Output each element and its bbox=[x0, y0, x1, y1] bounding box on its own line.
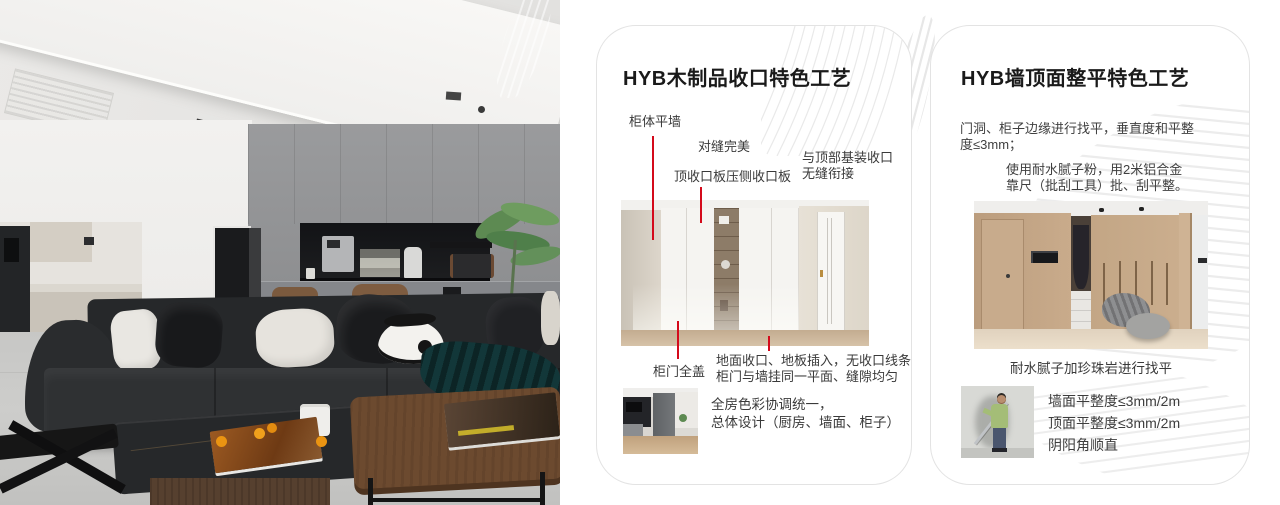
card-wood-finish: HYB木制品收口特色工艺 柜体平墙 对缝完美 顶收口板压侧收口板 与顶部基装收口… bbox=[596, 25, 912, 485]
paragraph-putty: 使用耐水腻子粉，用2米铝合金 靠尺（批刮工具）批、刮平整。 bbox=[1006, 162, 1188, 194]
kt-sofa bbox=[623, 424, 643, 436]
wp-door-groove-2 bbox=[831, 218, 832, 324]
living-room-photo bbox=[0, 0, 560, 505]
annotation-floor-joint-line2: 柜门与墙挂同一平面、缝隙均匀 bbox=[716, 369, 898, 384]
kt-floor bbox=[623, 436, 698, 454]
paragraph-leveling: 门洞、柜子边缘进行找平，垂直度和平整 度≤3mm； bbox=[960, 121, 1194, 153]
kitchen-upper-cabinet bbox=[30, 222, 92, 262]
kitchen-thumbnail bbox=[623, 388, 698, 454]
wwp-intercom bbox=[1031, 251, 1058, 263]
pillow-beige bbox=[541, 291, 560, 345]
wp-light-glow bbox=[633, 284, 803, 334]
orange-fruit-4 bbox=[316, 436, 327, 447]
annotation-line-4 bbox=[768, 336, 770, 351]
annotation-line-3 bbox=[677, 321, 679, 359]
wwp-pouf bbox=[1126, 313, 1170, 339]
spec-wall-flatness: 墙面平整度≤3mm/2m bbox=[1048, 390, 1180, 412]
kitchen-counter bbox=[30, 284, 142, 292]
wardrobe-photo bbox=[621, 200, 869, 346]
ceiling-vent-slot-2 bbox=[446, 91, 462, 100]
wall-rail bbox=[430, 242, 492, 248]
table-stretcher bbox=[368, 498, 545, 502]
spec-ceiling-flatness: 顶面平整度≤3mm/2m bbox=[1048, 412, 1180, 434]
spec-list: 墙面平整度≤3mm/2m 顶面平整度≤3mm/2m 阴阳角顺直 bbox=[1048, 390, 1180, 456]
annotation-color-unify: 全房色彩协调统一， 总体设计（厨房、墙面、柜子） bbox=[711, 396, 900, 432]
wwp-groove-4 bbox=[1151, 261, 1153, 305]
wood-wardrobe-photo bbox=[974, 201, 1208, 349]
wwp-door-handle bbox=[1006, 274, 1010, 278]
wp-door-groove bbox=[827, 218, 828, 324]
wwp-open-door bbox=[1179, 213, 1192, 341]
paragraph-leveling-line2: 度≤3mm； bbox=[960, 137, 1022, 152]
poster: HYB木制品收口特色工艺 柜体平墙 对缝完美 顶收口板压侧收口板 与顶部基装收口… bbox=[0, 0, 1280, 505]
wwp-groove-5 bbox=[1166, 263, 1168, 305]
annotation-color-unify-line2: 总体设计（厨房、墙面、柜子） bbox=[711, 415, 900, 430]
annotation-color-unify-line1: 全房色彩协调统一， bbox=[711, 397, 833, 412]
card2-title: HYB墙顶面整平特色工艺 bbox=[961, 62, 1189, 91]
radio-speaker bbox=[450, 254, 494, 278]
wt-pants bbox=[993, 428, 1006, 450]
cup-rack bbox=[360, 249, 400, 277]
wp-shelf-object bbox=[719, 216, 729, 224]
wall-switch bbox=[84, 237, 94, 245]
wwp-floor bbox=[974, 329, 1208, 349]
annotation-line-2 bbox=[700, 187, 702, 223]
annotation-top-joint-line2: 无缝衔接 bbox=[802, 166, 854, 181]
wt-shoes bbox=[992, 448, 1007, 452]
wwp-spot-2 bbox=[1139, 207, 1144, 211]
wwp-door bbox=[981, 219, 1024, 338]
annotation-top-board: 顶收口板压侧收口板 bbox=[674, 169, 791, 185]
kt-tv bbox=[626, 402, 642, 412]
wwp-groove bbox=[1103, 263, 1105, 305]
annotation-top-joint-line1: 与顶部基装收口 bbox=[802, 150, 893, 165]
annotation-line-1 bbox=[652, 136, 654, 240]
wwp-drawers bbox=[1071, 291, 1091, 333]
card1-title: HYB木制品收口特色工艺 bbox=[623, 62, 851, 91]
wp-floor bbox=[621, 330, 869, 346]
annotation-floor-joint: 地面收口、地板插入，无收口线条 柜门与墙挂同一平面、缝隙均匀 bbox=[716, 353, 911, 385]
paragraph-leveling-line1: 门洞、柜子边缘进行找平，垂直度和平整 bbox=[960, 121, 1194, 136]
orange-fruit-2 bbox=[254, 428, 265, 439]
orange-fruit-3 bbox=[267, 423, 277, 433]
photo-caption: 耐水腻子加珍珠岩进行找平 bbox=[974, 357, 1208, 377]
wwp-bright-room bbox=[1192, 215, 1208, 337]
capsule-machine bbox=[404, 247, 422, 278]
annotation-cabinet-flush: 柜体平墙 bbox=[629, 114, 681, 130]
coffee-machine-screen bbox=[327, 240, 340, 248]
kt-plant bbox=[679, 414, 687, 422]
annotation-seam-perfect: 对缝完美 bbox=[698, 139, 750, 155]
pillow-black bbox=[154, 301, 224, 369]
wwp-spot bbox=[1099, 208, 1104, 212]
orange-fruit bbox=[216, 436, 227, 447]
card-wall-leveling: HYB墙顶面整平特色工艺 门洞、柜子边缘进行找平，垂直度和平整 度≤3mm； 使… bbox=[930, 25, 1250, 485]
pillow-white-2 bbox=[255, 307, 336, 369]
annotation-floor-joint-line1: 地面收口、地板插入，无收口线条 bbox=[716, 353, 911, 368]
annotation-top-joint: 与顶部基装收口 无缝衔接 bbox=[802, 150, 893, 182]
annotation-door-full-cover: 柜门全盖 bbox=[653, 364, 705, 380]
paragraph-putty-line2: 靠尺（批刮工具）批、刮平整。 bbox=[1006, 178, 1188, 193]
spec-corner-straightness: 阴阳角顺直 bbox=[1048, 434, 1180, 456]
ceiling-spotlight-2 bbox=[478, 106, 485, 113]
wp-door-handle bbox=[820, 270, 823, 277]
wp-shelf-object-2 bbox=[721, 260, 730, 269]
mug bbox=[306, 268, 315, 279]
paragraph-putty-line1: 使用耐水腻子粉，用2米铝合金 bbox=[1006, 162, 1182, 177]
worker-thumbnail bbox=[961, 386, 1034, 458]
decorative-fan-card1 bbox=[761, 26, 911, 156]
wt-head bbox=[997, 395, 1006, 404]
stone-table-base bbox=[150, 478, 330, 505]
wwp-hanging-clothes bbox=[1073, 225, 1089, 289]
wwp-fixture bbox=[1198, 258, 1207, 263]
fridge-panel bbox=[4, 238, 19, 262]
